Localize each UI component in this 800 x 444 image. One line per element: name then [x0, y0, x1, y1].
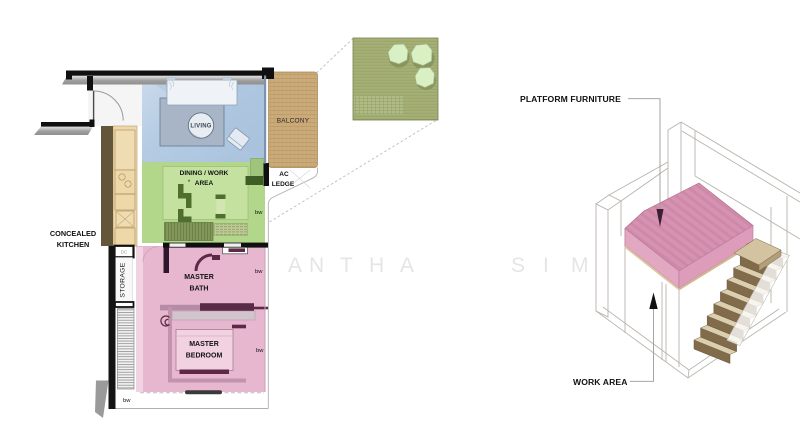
svg-text:I: I — [543, 254, 549, 277]
svg-text:T: T — [340, 254, 353, 277]
svg-text:bw: bw — [256, 348, 264, 354]
svg-text:LIVING: LIVING — [190, 124, 211, 130]
svg-text:AC: AC — [279, 171, 289, 178]
svg-text:LEDGE: LEDGE — [272, 181, 295, 188]
svg-text:AREA: AREA — [195, 180, 214, 187]
svg-text:S: S — [511, 254, 525, 277]
svg-text:M: M — [571, 254, 589, 277]
svg-text:CONCEALED: CONCEALED — [50, 229, 96, 238]
svg-text:H: H — [369, 254, 384, 277]
svg-text:PLATFORM FURNITURE: PLATFORM FURNITURE — [520, 94, 621, 104]
svg-text:bw: bw — [123, 398, 131, 404]
svg-text:DINING / WORK: DINING / WORK — [180, 170, 229, 177]
svg-text:bw: bw — [255, 210, 263, 216]
svg-text:BATH: BATH — [190, 286, 209, 293]
svg-text:A: A — [400, 254, 414, 277]
svg-text:MASTER: MASTER — [189, 341, 219, 348]
svg-text:STORAGE: STORAGE — [120, 262, 127, 297]
svg-text:DC: DC — [121, 250, 128, 255]
svg-text:BALCONY: BALCONY — [277, 118, 310, 125]
svg-text:WORK AREA: WORK AREA — [573, 377, 628, 387]
svg-text:bw: bw — [255, 269, 263, 275]
svg-text:KITCHEN: KITCHEN — [57, 240, 89, 249]
svg-text:BEDROOM: BEDROOM — [186, 353, 223, 360]
svg-text:MASTER: MASTER — [184, 274, 214, 281]
svg-text:A: A — [288, 254, 302, 277]
svg-text:N: N — [309, 254, 324, 277]
